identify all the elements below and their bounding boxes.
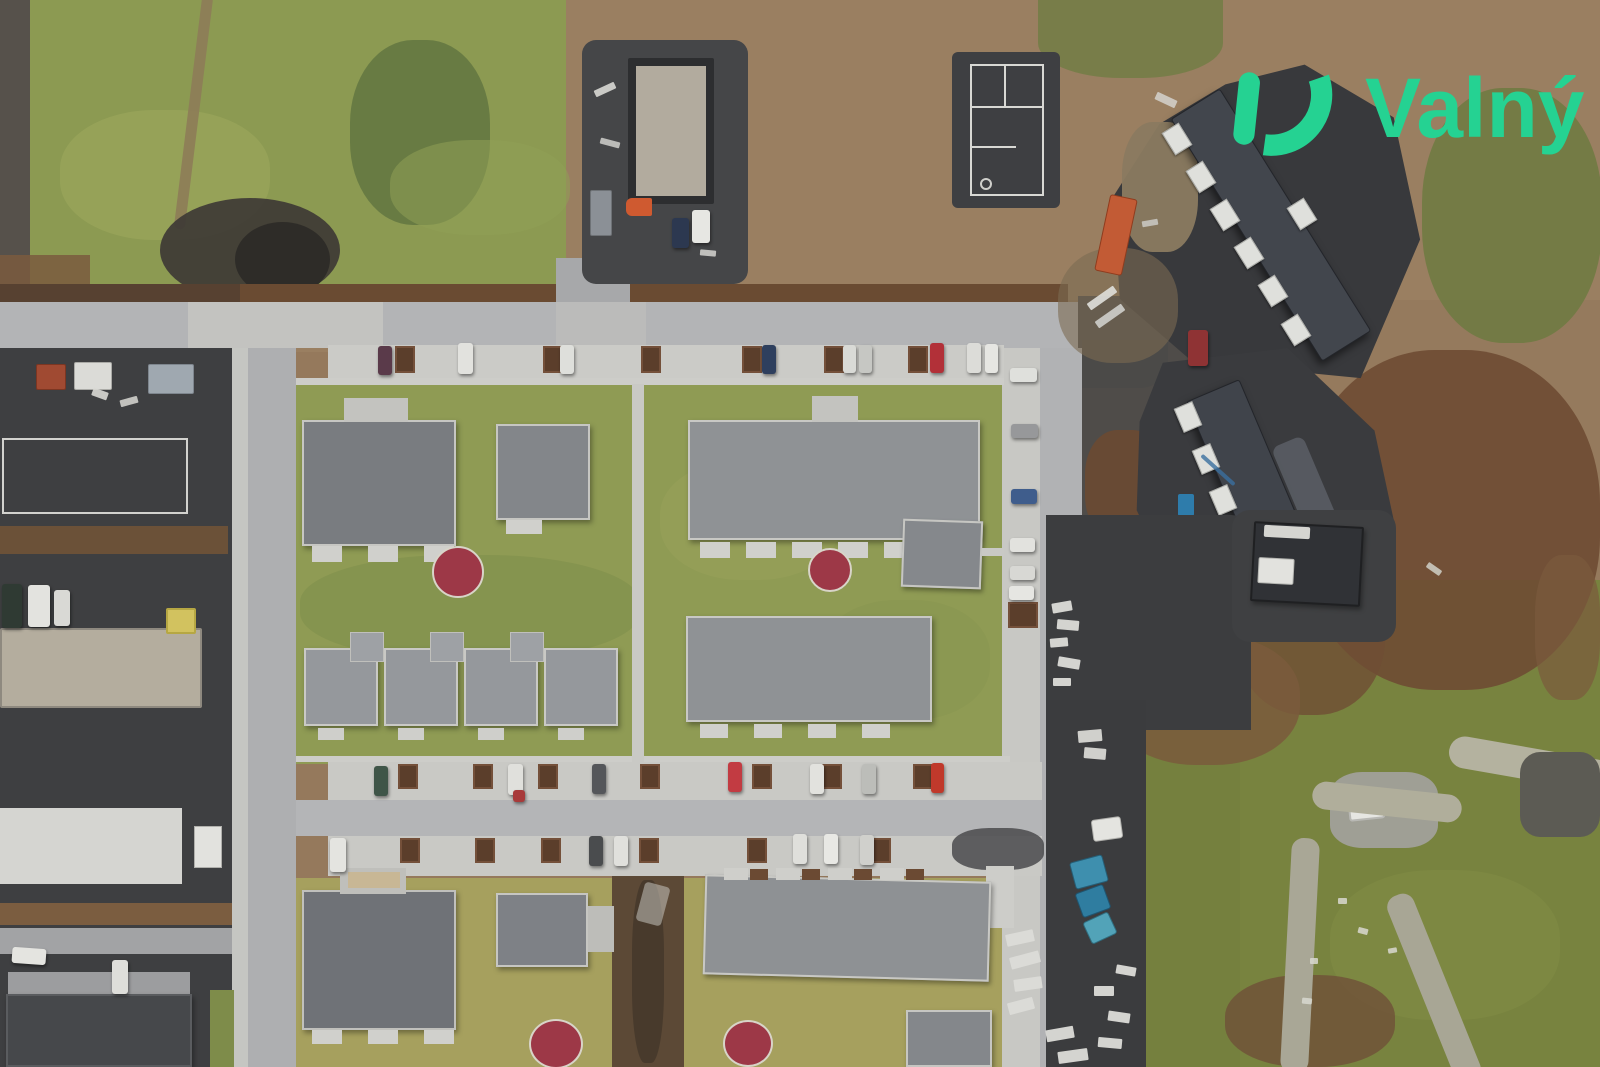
foundation-ring [980, 178, 992, 190]
playground-circle [808, 548, 852, 592]
yard-brown-strip [0, 526, 228, 554]
car-dark-gray [592, 764, 606, 794]
brown-patch-east-edge [1535, 555, 1600, 700]
patio-deck [478, 728, 504, 740]
rowhouse-s1-roof [703, 874, 992, 981]
car-white [112, 960, 128, 994]
van-white [458, 343, 473, 374]
patio-deck [880, 868, 904, 880]
car-teal [374, 766, 388, 796]
south-dark-patch [952, 828, 1044, 870]
white-trailer-nw [74, 362, 112, 390]
car-white [843, 345, 856, 373]
car-white [1009, 586, 1034, 600]
pallet [1053, 678, 1071, 686]
lhouse-north-canopy [344, 398, 408, 422]
car-red [728, 762, 742, 792]
patio-deck [368, 546, 398, 562]
white-caravan [1091, 816, 1124, 842]
aerial-photo: Valný [0, 0, 1600, 1067]
patio-deck [312, 1030, 342, 1044]
patio-deck [398, 728, 424, 740]
waste-shed [641, 346, 661, 373]
rowhouse-n2-roof [686, 616, 932, 722]
patio-deck [746, 542, 776, 558]
precast-slab-stack [0, 808, 182, 884]
house-northeast-roof [901, 519, 983, 590]
patio-deck [724, 868, 748, 880]
white-debris [1310, 958, 1318, 964]
car-dark-blue [762, 345, 776, 374]
valny-logo-icon [1230, 66, 1335, 161]
cluster-stair-tower [430, 632, 464, 662]
car-blue [1011, 489, 1037, 504]
storage-shed-brown [854, 869, 872, 880]
car-white [967, 343, 981, 373]
pallet [1094, 986, 1114, 996]
main-road [0, 302, 1078, 348]
van-dark-green [2, 584, 22, 628]
car-red [930, 343, 944, 373]
foundation-outline [970, 64, 1044, 196]
cluster-stair-tower [510, 632, 544, 662]
foundation-wall [970, 106, 1044, 108]
waste-shed [639, 838, 659, 863]
waste-shed [908, 346, 928, 373]
house-southeast-roof [906, 1010, 992, 1067]
car-white [824, 834, 838, 864]
van-white [28, 585, 50, 627]
equipment-shed-roof [636, 66, 706, 196]
car-white [1010, 538, 1035, 552]
van-white [692, 210, 710, 243]
car-white [614, 836, 628, 866]
slab-shed [194, 826, 222, 868]
white-debris [1338, 898, 1347, 904]
grass-patch-center [390, 140, 570, 235]
waste-shed [473, 764, 493, 789]
warehouse-west [0, 628, 202, 708]
south-yard-apron [8, 972, 190, 994]
blue-equipment [1178, 494, 1194, 516]
car-red [931, 763, 944, 793]
patio-deck [424, 1030, 454, 1044]
patio-deck [558, 728, 584, 740]
car-navy [672, 218, 689, 248]
waste-shed [913, 764, 933, 789]
orange-equipment [626, 198, 652, 216]
lhouse-south-roof [302, 890, 456, 1030]
path-house-northeast [982, 548, 1004, 556]
moss-patch-top-center [1038, 0, 1223, 78]
yard-rocky-strip [0, 903, 232, 925]
waste-shed [398, 764, 418, 789]
valny-watermark: Valný [1230, 66, 1584, 161]
valny-logo-text: Valný [1365, 66, 1584, 150]
mid-parking-lower [328, 836, 1042, 876]
car-white [860, 835, 874, 865]
car-white [54, 590, 70, 626]
car-white [793, 834, 807, 864]
left-street-road [248, 348, 296, 1067]
verge-left-street [210, 990, 234, 1067]
small-house-south-roof [496, 893, 588, 967]
lhouse-south-deck [348, 872, 400, 888]
pallet [1098, 1037, 1123, 1049]
patio-deck [828, 868, 852, 880]
pallet [1084, 747, 1107, 760]
playground-circle [529, 1019, 583, 1067]
waste-shed [871, 838, 891, 863]
van-white [11, 947, 46, 965]
car-dark-purple [378, 346, 392, 375]
dark-building-southwest [6, 994, 192, 1067]
car-white [560, 345, 574, 374]
patio-deck [312, 546, 342, 562]
waste-shed [747, 838, 767, 863]
path-junction-pad [1520, 752, 1600, 837]
yellow-crate [166, 608, 196, 634]
waste-shed [400, 838, 420, 863]
main-road-patch [556, 302, 646, 348]
gray-shed-nw [148, 364, 194, 394]
footpath-north [632, 384, 644, 762]
waste-shed [822, 764, 842, 789]
foundation-wall [1004, 64, 1006, 108]
car-white [985, 344, 998, 373]
storage-shed-brown [906, 869, 924, 880]
patio-deck [368, 1030, 398, 1044]
patio-deck [862, 724, 890, 738]
s2-site-cabin [1257, 557, 1294, 585]
storage-shed-brown [802, 869, 820, 880]
cluster-stair-tower [350, 632, 384, 662]
pallet [1050, 637, 1069, 648]
patio-deck [808, 724, 836, 738]
car-red-small [513, 790, 525, 802]
car-white [810, 764, 824, 794]
playground-circle [432, 546, 484, 598]
small-house-south-annex [588, 906, 614, 952]
ditch-strip-dark [0, 284, 240, 302]
waste-shed [824, 346, 844, 373]
rowhouse-n1-entrance [812, 396, 858, 422]
pallet [1057, 619, 1080, 631]
car-white [1010, 368, 1037, 382]
car-silver [859, 345, 872, 373]
lhouse-north-roof [302, 420, 456, 546]
car-silver [862, 764, 876, 794]
s2-roof-bar [1264, 525, 1311, 539]
top-parking-strip [328, 345, 1004, 378]
foundation-wall [970, 146, 1016, 148]
waste-shed [395, 346, 415, 373]
small-house-north-roof [496, 424, 590, 520]
storage-shed-brown [750, 869, 768, 880]
patio-deck [506, 520, 542, 534]
white-debris [1302, 998, 1312, 1005]
red-truck [1188, 330, 1208, 366]
patio-deck [776, 868, 800, 880]
painted-parking-grid [2, 438, 188, 514]
small-gray-shed [590, 190, 612, 236]
waste-shed [752, 764, 772, 789]
white-debris [700, 249, 716, 256]
patio-deck [318, 728, 344, 740]
waste-shed [640, 764, 660, 789]
patio-deck [700, 724, 728, 738]
waste-shed [538, 764, 558, 789]
patio-deck [754, 724, 782, 738]
playground-circle [723, 1020, 773, 1067]
waste-shed [1008, 602, 1038, 628]
pallet [1078, 729, 1103, 743]
mid-street [296, 800, 1042, 836]
cluster-house-roof [544, 648, 618, 726]
main-road-patch [188, 302, 383, 348]
car-dark-gray [589, 836, 603, 866]
waste-shed [541, 838, 561, 863]
car-white [1010, 566, 1035, 580]
waste-shed [742, 346, 762, 373]
roadside-band-west [0, 0, 30, 298]
car-gray [1011, 424, 1038, 438]
waste-shed [475, 838, 495, 863]
left-street-sidewalk [232, 348, 248, 1067]
red-container [36, 364, 66, 390]
patio-deck [700, 542, 730, 558]
sidewalk-top [296, 378, 1004, 385]
van-white [330, 838, 346, 872]
